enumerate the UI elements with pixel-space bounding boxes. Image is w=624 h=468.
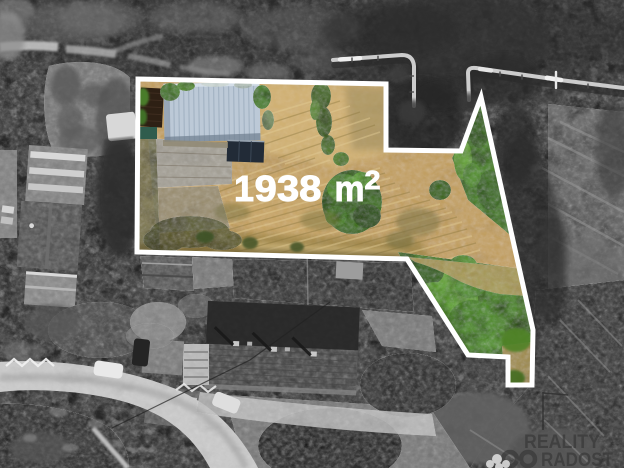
svg-text:2: 2 — [365, 165, 381, 195]
svg-text:938: 938 — [255, 168, 322, 209]
svg-text:RADOST: RADOST — [541, 450, 613, 468]
svg-text:m: m — [335, 168, 365, 209]
svg-text:1: 1 — [234, 168, 254, 209]
